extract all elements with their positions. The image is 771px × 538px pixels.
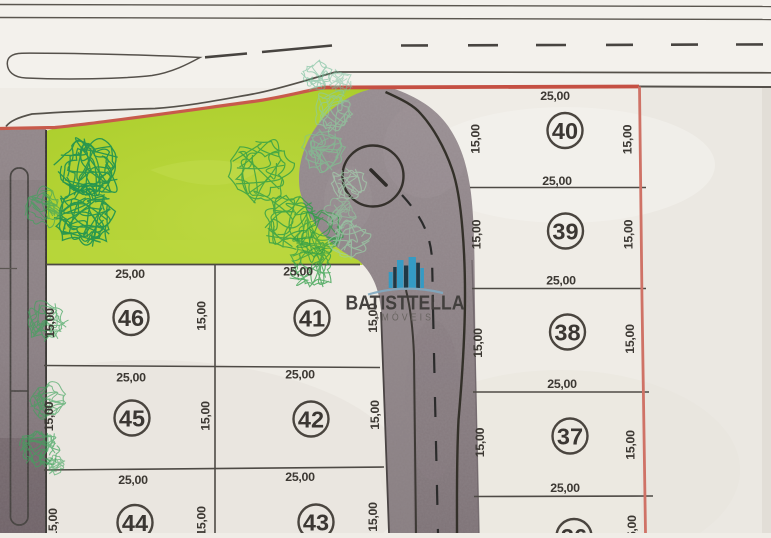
svg-text:15,00: 15,00 bbox=[43, 308, 57, 338]
svg-text:15,00: 15,00 bbox=[195, 301, 209, 331]
svg-text:15,00: 15,00 bbox=[42, 401, 56, 431]
svg-text:25,00: 25,00 bbox=[118, 473, 148, 487]
svg-text:37: 37 bbox=[557, 423, 583, 449]
svg-text:15,00: 15,00 bbox=[470, 219, 484, 249]
svg-text:45: 45 bbox=[119, 405, 145, 431]
svg-text:41: 41 bbox=[299, 305, 325, 331]
svg-text:15,00: 15,00 bbox=[625, 515, 639, 533]
svg-text:15,00: 15,00 bbox=[473, 427, 487, 457]
svg-text:25,00: 25,00 bbox=[116, 371, 146, 385]
svg-text:40: 40 bbox=[552, 118, 578, 144]
svg-text:15,00: 15,00 bbox=[471, 328, 485, 358]
svg-text:44: 44 bbox=[122, 510, 148, 533]
svg-text:42: 42 bbox=[298, 406, 324, 432]
svg-text:25,00: 25,00 bbox=[115, 267, 145, 281]
svg-text:25,00: 25,00 bbox=[550, 481, 580, 495]
svg-text:15,00: 15,00 bbox=[469, 124, 483, 154]
svg-text:25,00: 25,00 bbox=[542, 174, 572, 188]
svg-text:38: 38 bbox=[554, 319, 580, 345]
svg-text:36: 36 bbox=[561, 524, 587, 533]
svg-text:15,00: 15,00 bbox=[195, 506, 209, 533]
svg-text:15,00: 15,00 bbox=[366, 502, 380, 532]
svg-text:39: 39 bbox=[552, 218, 578, 244]
svg-text:BATISTTELLA: BATISTTELLA bbox=[346, 292, 465, 315]
svg-text:15,00: 15,00 bbox=[368, 400, 382, 430]
svg-text:46: 46 bbox=[118, 305, 144, 331]
svg-text:IMÓVEIS: IMÓVEIS bbox=[376, 311, 434, 324]
svg-text:25,00: 25,00 bbox=[283, 265, 313, 279]
svg-text:25,00: 25,00 bbox=[285, 368, 315, 382]
svg-text:25,00: 25,00 bbox=[285, 470, 315, 484]
svg-text:15,00: 15,00 bbox=[623, 324, 637, 354]
svg-text:15,00: 15,00 bbox=[624, 430, 638, 460]
svg-text:15,00: 15,00 bbox=[622, 219, 636, 249]
svg-text:25,00: 25,00 bbox=[546, 274, 576, 288]
svg-text:15,00: 15,00 bbox=[621, 124, 635, 154]
svg-text:25,00: 25,00 bbox=[547, 377, 577, 391]
svg-text:15,00: 15,00 bbox=[199, 401, 213, 431]
svg-text:25,00: 25,00 bbox=[540, 89, 570, 103]
svg-text:43: 43 bbox=[303, 509, 329, 533]
svg-text:15,00: 15,00 bbox=[46, 508, 60, 533]
